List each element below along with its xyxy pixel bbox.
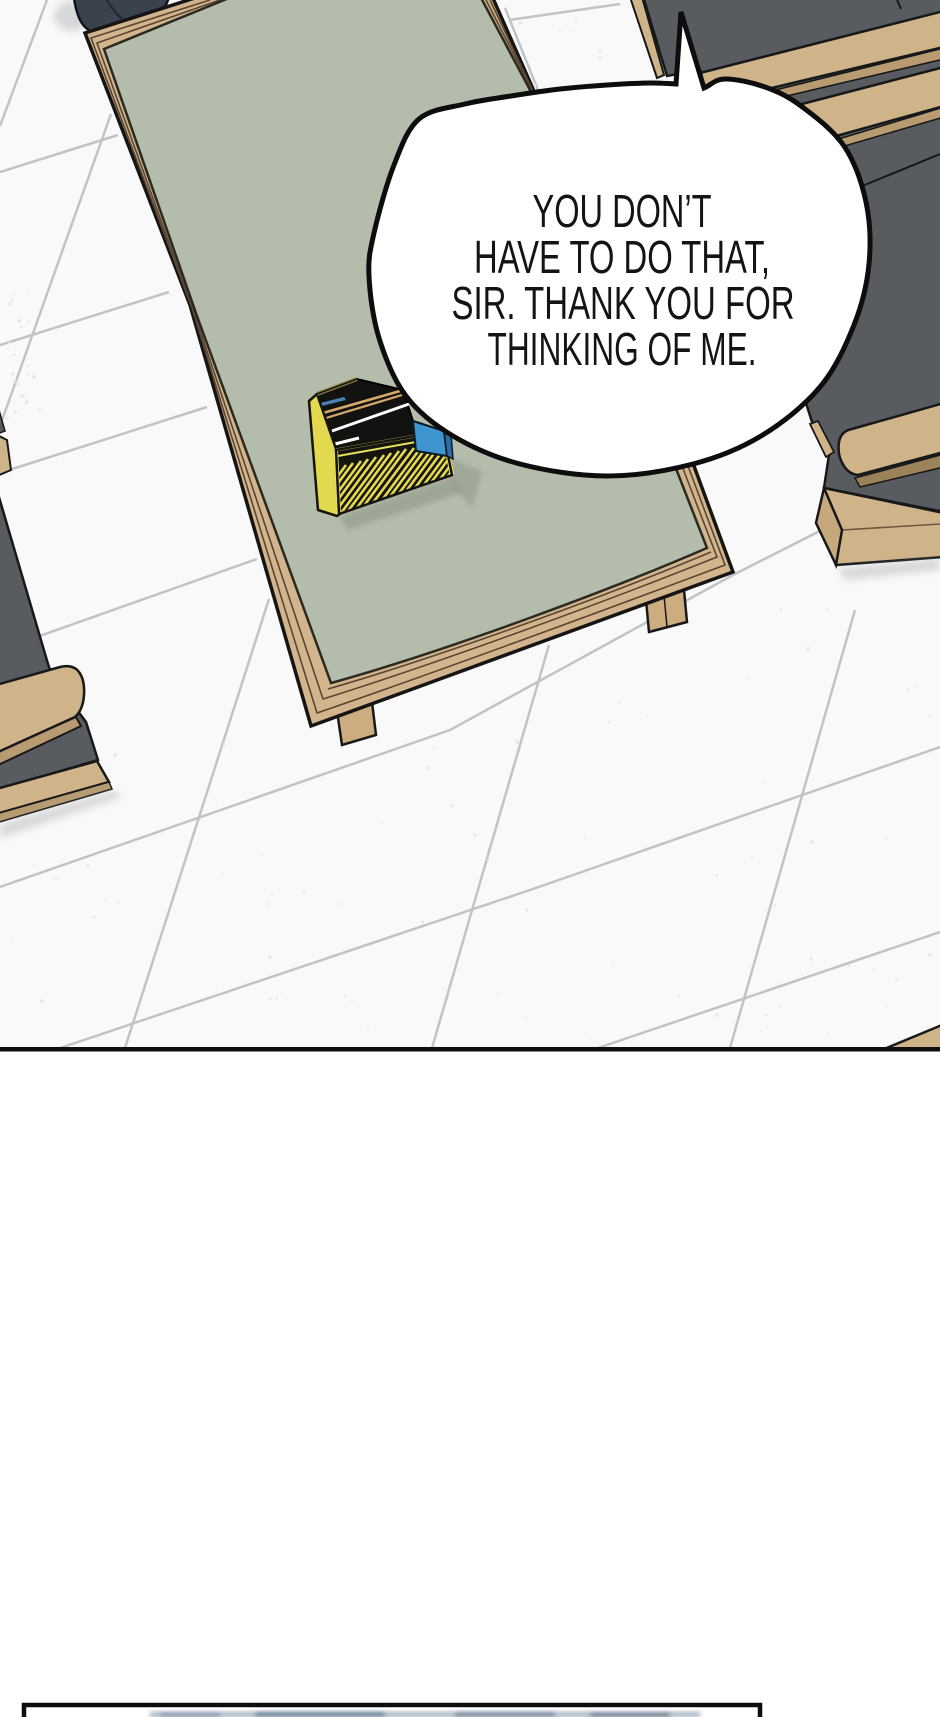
svg-text:HAVE TO DO THAT,: HAVE TO DO THAT, [474,231,770,283]
svg-text:THINKING OF ME.: THINKING OF ME. [488,323,757,375]
svg-text:YOU DON’T: YOU DON’T [533,185,712,237]
svg-text:SIR. THANK YOU FOR: SIR. THANK YOU FOR [452,277,795,329]
